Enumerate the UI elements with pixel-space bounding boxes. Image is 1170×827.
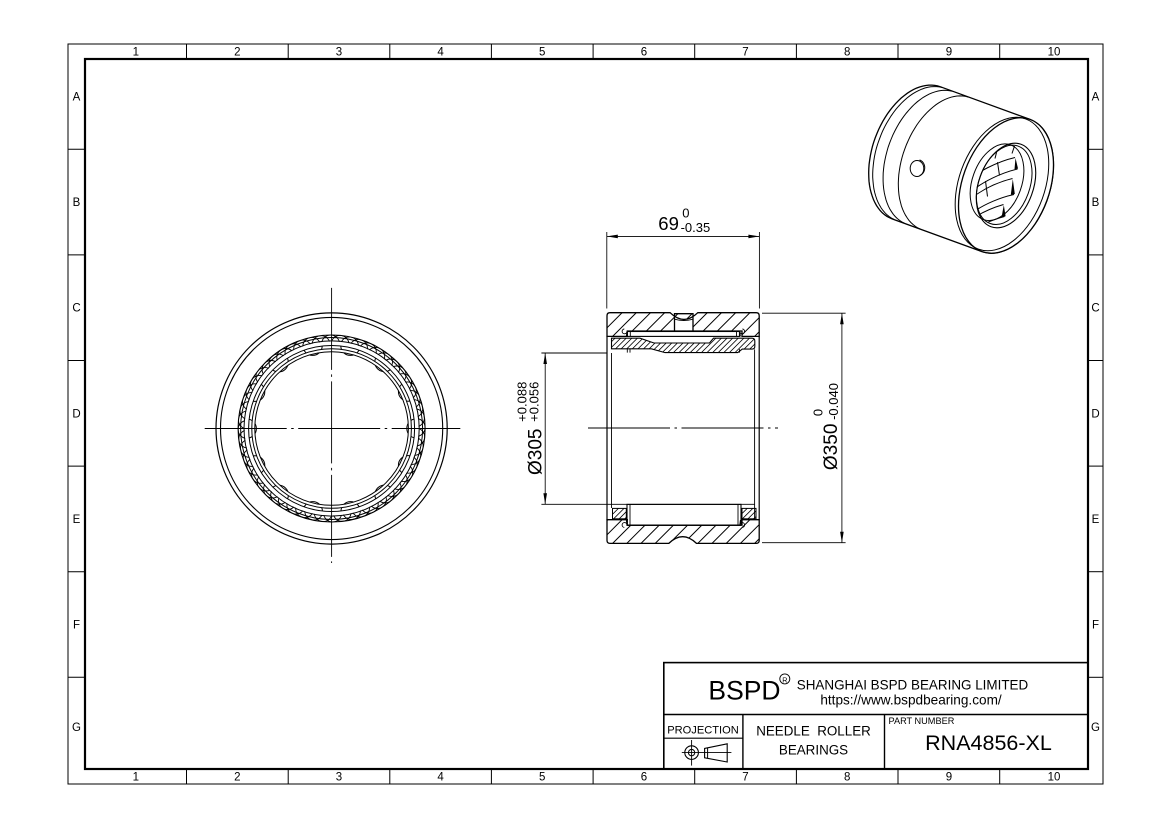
svg-text:3: 3 bbox=[336, 47, 342, 59]
svg-text:6: 6 bbox=[641, 47, 647, 59]
svg-text:D: D bbox=[72, 408, 80, 420]
svg-text:B: B bbox=[73, 197, 81, 209]
svg-text:8: 8 bbox=[844, 47, 850, 59]
svg-text:4: 4 bbox=[437, 772, 444, 784]
svg-text:RNA4856-XL: RNA4856-XL bbox=[925, 731, 1052, 755]
svg-text:9: 9 bbox=[946, 47, 952, 59]
svg-text:3: 3 bbox=[336, 772, 342, 784]
svg-text:BEARINGS: BEARINGS bbox=[779, 742, 848, 757]
svg-text:-0.040: -0.040 bbox=[826, 383, 841, 420]
svg-text:Ø305: Ø305 bbox=[526, 429, 547, 475]
svg-text:NEEDLE ROLLER: NEEDLE ROLLER bbox=[756, 724, 871, 739]
svg-text:+0.056: +0.056 bbox=[526, 382, 541, 422]
svg-text:0: 0 bbox=[811, 409, 826, 416]
svg-text:PROJECTION: PROJECTION bbox=[667, 724, 739, 736]
svg-text:F: F bbox=[73, 620, 80, 632]
svg-text:A: A bbox=[73, 92, 81, 104]
svg-text:4: 4 bbox=[437, 47, 444, 59]
svg-text:5: 5 bbox=[539, 47, 545, 59]
svg-text:69: 69 bbox=[658, 213, 679, 234]
svg-text:BSPD: BSPD bbox=[708, 675, 780, 705]
svg-text:0: 0 bbox=[682, 205, 689, 220]
svg-text:B: B bbox=[1092, 197, 1100, 209]
svg-text:6: 6 bbox=[641, 772, 647, 784]
svg-text:G: G bbox=[72, 722, 81, 734]
svg-text:R: R bbox=[782, 675, 787, 684]
svg-text:Ø350: Ø350 bbox=[821, 424, 842, 470]
svg-text:G: G bbox=[1091, 722, 1100, 734]
svg-text:1: 1 bbox=[133, 47, 139, 59]
svg-text:C: C bbox=[72, 303, 80, 315]
svg-text:C: C bbox=[1091, 303, 1099, 315]
svg-text:5: 5 bbox=[539, 772, 545, 784]
svg-text:SHANGHAI BSPD BEARING LIMITED: SHANGHAI BSPD BEARING LIMITED bbox=[797, 677, 1029, 692]
svg-text:8: 8 bbox=[844, 772, 850, 784]
svg-text:2: 2 bbox=[234, 47, 240, 59]
svg-text:PART NUMBER: PART NUMBER bbox=[889, 716, 955, 726]
svg-text:https://www.bspdbearing.com/: https://www.bspdbearing.com/ bbox=[820, 692, 1002, 707]
svg-text:1: 1 bbox=[133, 772, 139, 784]
svg-text:7: 7 bbox=[742, 772, 748, 784]
svg-text:9: 9 bbox=[946, 772, 952, 784]
svg-text:A: A bbox=[1092, 92, 1100, 104]
svg-text:10: 10 bbox=[1048, 772, 1061, 784]
svg-text:-0.35: -0.35 bbox=[681, 220, 711, 235]
svg-text:2: 2 bbox=[234, 772, 240, 784]
svg-text:F: F bbox=[1092, 620, 1099, 632]
svg-text:7: 7 bbox=[742, 47, 748, 59]
svg-text:E: E bbox=[73, 514, 81, 526]
svg-text:D: D bbox=[1091, 408, 1099, 420]
svg-text:E: E bbox=[1092, 514, 1100, 526]
svg-text:10: 10 bbox=[1048, 47, 1061, 59]
